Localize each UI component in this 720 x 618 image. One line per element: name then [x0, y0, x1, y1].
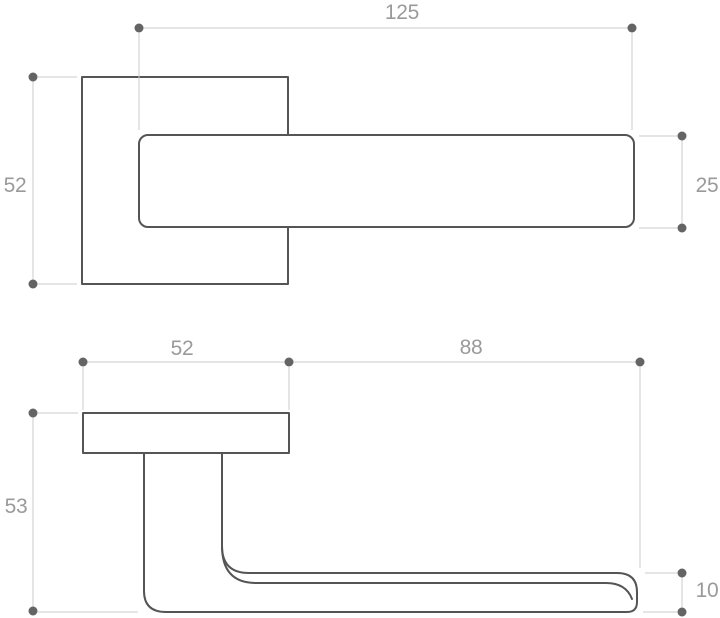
dim-thickness-dot-top	[678, 569, 687, 578]
dim-rose-width-dot-mid	[285, 358, 294, 367]
dim-projection-dot-bottom	[29, 607, 38, 616]
dim-lever-height-dot-top	[678, 132, 687, 141]
dim-rose-width-dot-left	[79, 358, 88, 367]
dim-projection-label: 53	[5, 495, 28, 518]
dim-thickness-label: 10	[696, 579, 719, 602]
dim-lever-reach-dot-right	[636, 358, 645, 367]
technical-drawing-page: 125 52 25	[0, 0, 720, 618]
dim-rose-width: 52	[79, 337, 641, 410]
dim-lever-height-label: 25	[696, 174, 719, 197]
dim-rose-size-label: 52	[4, 174, 27, 197]
dim-lever-reach-label: 88	[460, 336, 483, 359]
dim-lever-length-label: 125	[385, 1, 419, 24]
dim-lever-length-dot-right	[628, 24, 637, 33]
side-rose-outline	[83, 413, 289, 453]
side-neck-lever-outline	[144, 453, 637, 612]
dim-lever-height-dot-bottom	[678, 224, 687, 233]
dim-rose-width-label: 52	[171, 337, 194, 360]
dim-rose-size-dot-bottom	[29, 280, 38, 289]
dim-rose-size-dot-top	[29, 73, 38, 82]
dim-thickness-dot-bottom	[678, 608, 687, 617]
dim-lever-height: 25	[639, 132, 718, 233]
dim-thickness: 10	[643, 569, 718, 617]
front-lever-outline	[139, 135, 634, 227]
side-view: 52 88 53	[5, 336, 719, 617]
dim-lever-reach: 88	[460, 336, 645, 568]
dim-projection-dot-top	[29, 409, 38, 418]
technical-drawing-canvas: 125 52 25	[0, 0, 720, 618]
front-view: 125 52 25	[4, 1, 719, 289]
dim-rose-size: 52	[4, 73, 77, 289]
dim-lever-length-dot-left	[135, 24, 144, 33]
